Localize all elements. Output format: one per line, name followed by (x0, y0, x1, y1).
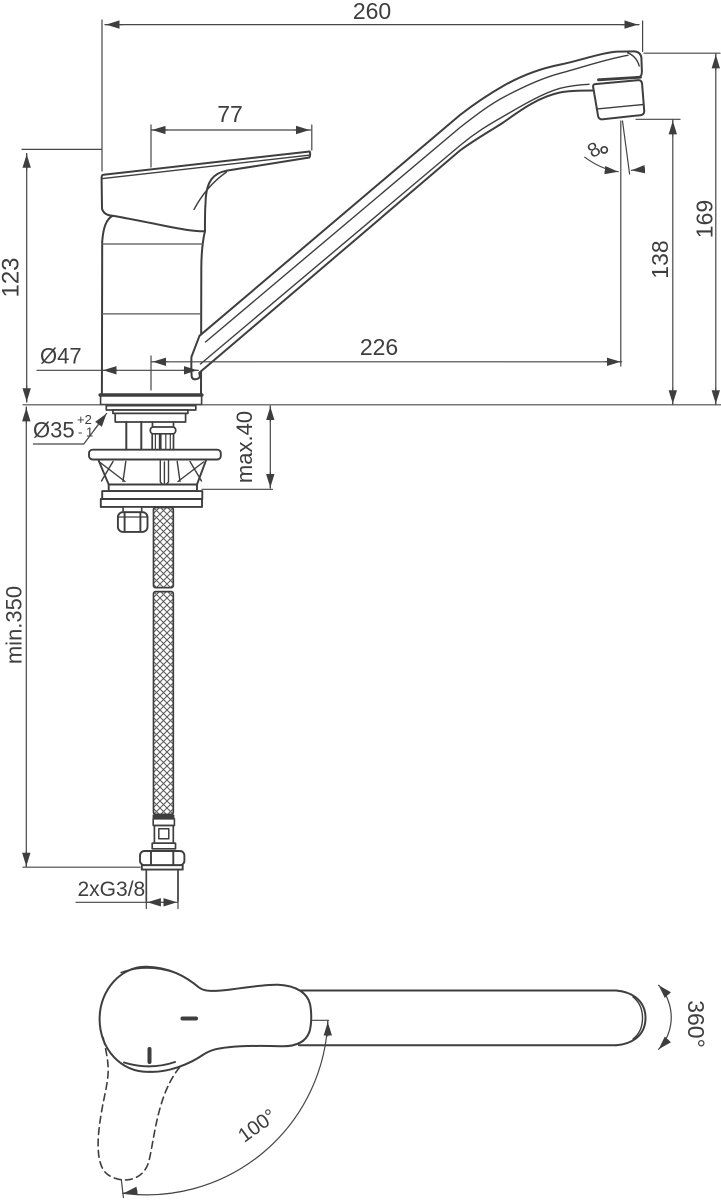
svg-text:123: 123 (0, 257, 25, 297)
svg-text:Ø47: Ø47 (40, 344, 82, 369)
svg-text:2xG3/8: 2xG3/8 (78, 878, 146, 901)
svg-text:77: 77 (217, 101, 243, 127)
svg-text:260: 260 (353, 0, 391, 24)
svg-text:169: 169 (692, 200, 718, 238)
svg-text:Ø35: Ø35 (33, 418, 75, 443)
svg-text:138: 138 (647, 240, 673, 278)
svg-text:min.350: min.350 (2, 586, 27, 664)
svg-text:360°: 360° (683, 1000, 709, 1048)
svg-text:max.40: max.40 (232, 411, 257, 483)
svg-text:226: 226 (360, 334, 398, 360)
svg-text:- 1: - 1 (78, 425, 93, 440)
